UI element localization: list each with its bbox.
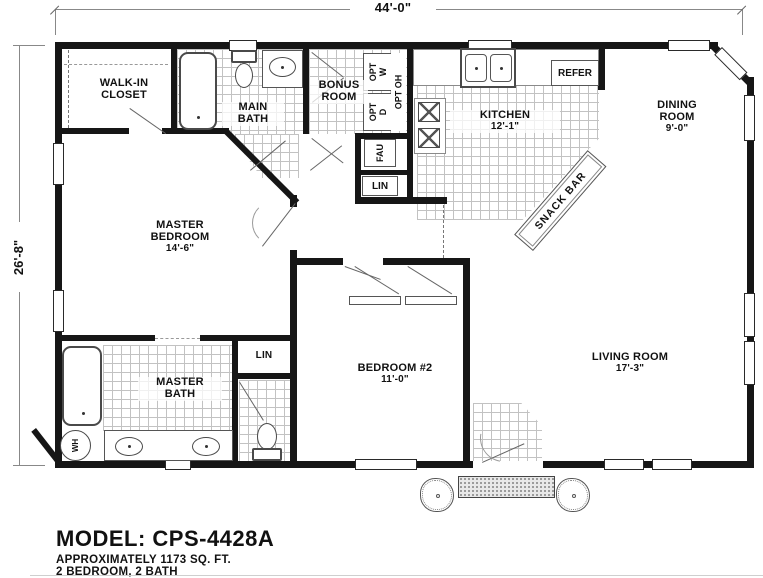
closet-shelf-line <box>64 64 168 65</box>
wall-closet-bottom <box>57 128 129 134</box>
window <box>744 95 755 141</box>
water-heater-label: WH <box>71 439 80 452</box>
wall-refer-right <box>598 46 605 90</box>
room-label-bedroom-2: BEDROOM #2 11'-0" <box>338 363 452 386</box>
closet2-slider-panel <box>349 296 401 305</box>
dim-tick <box>742 9 743 35</box>
closet2-slider-panel <box>405 296 457 305</box>
opt-overhead-strip: OPT OH <box>391 53 406 131</box>
room-label-master-bath: MASTER BATH <box>138 377 222 401</box>
wall-bath-bonus <box>303 46 309 134</box>
room-label-walk-in-closet: WALK-IN CLOSET <box>72 78 176 102</box>
water-heater: WH <box>60 430 91 461</box>
dim-depth-label: 26'-8" <box>12 239 27 274</box>
linen-hall-label: LIN <box>372 181 388 192</box>
opt-dryer-label: OPT D <box>368 99 388 125</box>
room-label-kitchen: KITCHEN 12'-1" <box>450 110 560 133</box>
room-label-bonus-room: BONUS ROOM <box>310 80 368 104</box>
porch-mat <box>458 476 555 498</box>
wall-fau-lin <box>355 170 413 175</box>
window <box>355 459 417 470</box>
room-label-main-bath: MAIN BATH <box>222 102 284 126</box>
wall-lin-bath-bottom <box>238 373 290 379</box>
door-leaf-closet <box>129 108 166 134</box>
opt-washer-label: OPT W <box>368 59 388 85</box>
room-label-living-room: LIVING ROOM 17'-3" <box>572 352 688 375</box>
vanity-sink <box>269 57 296 77</box>
closet2-slider-line <box>354 266 399 294</box>
room-label-master-bedroom: MASTER BEDROOM 14'-6" <box>118 220 242 255</box>
refrigerator-label: REFER <box>558 68 592 79</box>
config-text: 2 BEDROOM, 2 BATH <box>56 566 274 578</box>
toilet-bowl <box>257 423 277 450</box>
floor-plan: 44'-0" 26'-8" <box>0 0 763 578</box>
footer: MODEL: CPS-4428A APPROXIMATELY 1173 SQ. … <box>56 526 274 578</box>
area-text: APPROXIMATELY 1173 SQ. FT. <box>56 554 274 566</box>
window <box>668 40 710 51</box>
dim-tick <box>55 9 56 35</box>
stove-burner-icon <box>418 102 440 122</box>
wall-closet2-top <box>383 258 467 265</box>
door-arc-master-bedroom <box>252 201 296 245</box>
window <box>53 290 64 332</box>
opt-overhead-label: OPT OH <box>394 75 404 110</box>
door-leaf-bonus-lower <box>311 138 343 163</box>
closet2-slider-line <box>407 266 452 294</box>
refrigerator: REFER <box>551 60 599 86</box>
stove-burner-icon <box>418 128 440 148</box>
toilet-bowl <box>235 63 253 88</box>
dim-tick <box>13 465 45 466</box>
linen-bath-label: LIN <box>240 351 288 362</box>
wall-lin-bottom <box>355 197 447 204</box>
sink-basin <box>465 54 487 82</box>
room-label-dining-room: DINING ROOM 9'-0" <box>645 100 709 135</box>
wall-mbr-bottom-left <box>57 335 155 341</box>
wall-left <box>55 42 62 468</box>
dim-width-label: 44'-0" <box>350 1 436 15</box>
tree-icon <box>556 478 590 512</box>
furnace-box: FAU <box>364 139 396 167</box>
master-bath-opening <box>155 338 200 339</box>
window <box>744 293 755 337</box>
wall-bottom-right <box>543 461 754 468</box>
closet-rod-line <box>68 50 69 128</box>
dim-tick <box>13 45 45 46</box>
wall-closet2-right <box>463 258 470 305</box>
window <box>652 459 692 470</box>
linen-hall-box: LIN <box>362 176 398 196</box>
dim-depth-wrap: 26'-8" <box>0 222 39 292</box>
vanity-sink <box>115 437 143 456</box>
page-edge-line <box>30 575 763 576</box>
wall-bedroom2-right <box>463 300 470 461</box>
kitchen-sink <box>460 48 516 88</box>
window <box>53 143 64 185</box>
vanity-sink <box>192 437 220 456</box>
wall-mbr-bottom-right <box>200 335 297 341</box>
sink-basin <box>490 54 512 82</box>
bathtub <box>179 52 217 130</box>
wall-bedroom2-top <box>297 258 343 265</box>
tree-icon <box>420 478 454 512</box>
window <box>744 341 755 385</box>
cased-opening <box>443 205 444 258</box>
window <box>604 459 644 470</box>
model-title: MODEL: CPS-4428A <box>56 526 274 552</box>
wall-bedroom2-left <box>290 250 297 461</box>
window-corner <box>714 47 747 80</box>
toilet-tank <box>252 448 282 461</box>
master-bathtub <box>62 346 102 426</box>
wall-fau-left <box>355 133 361 204</box>
toilet-tank <box>231 50 257 63</box>
furnace-label: FAU <box>375 144 385 162</box>
wall-top <box>55 42 718 49</box>
